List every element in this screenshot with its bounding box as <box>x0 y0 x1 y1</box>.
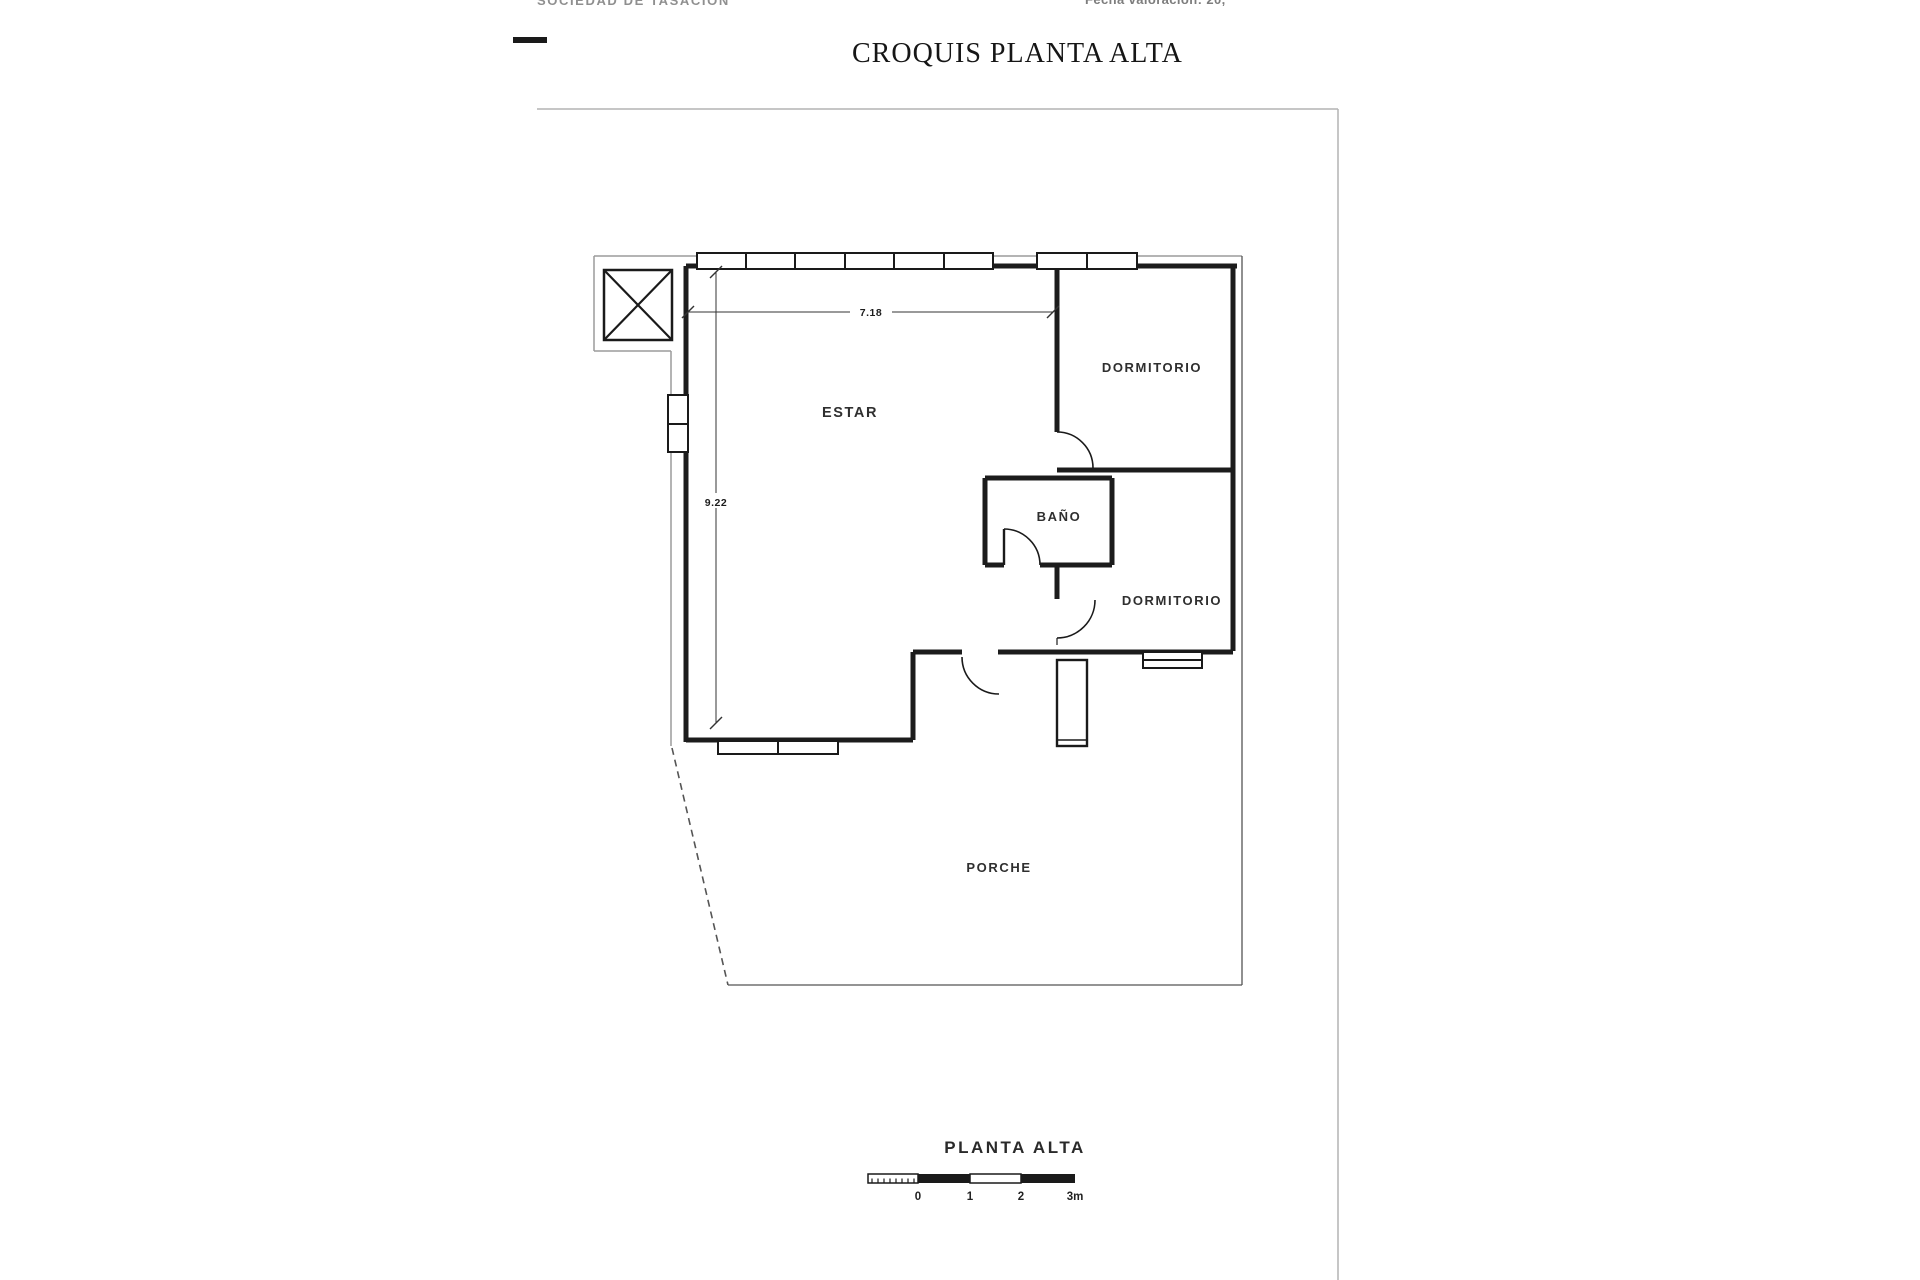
floorplan-drawing: 7.189.22ESTARDORMITORIOBAÑODORMITORIOPOR… <box>0 0 1920 1280</box>
shaft-box <box>604 270 672 340</box>
scale-tick-label: 1 <box>967 1191 974 1203</box>
room-label-porche: PORCHE <box>966 860 1031 875</box>
windows <box>668 253 1202 754</box>
scale-bar-segment <box>918 1174 970 1183</box>
walls <box>686 266 1237 742</box>
scale-tick-label: 2 <box>1018 1191 1024 1203</box>
room-label-dormitorio: DORMITORIO <box>1102 360 1202 375</box>
door-swing-arc <box>962 657 999 694</box>
door-swing-arc <box>1057 600 1095 638</box>
door-swing-arc <box>1004 529 1040 565</box>
logo <box>513 37 547 43</box>
logo-dash <box>513 37 547 43</box>
scale-bar-segment <box>1021 1174 1075 1183</box>
stair-opening <box>1057 660 1087 746</box>
scale-bar: 0123m <box>868 1174 1083 1203</box>
room-label-estar: ESTAR <box>822 405 878 421</box>
door-swing-arc <box>1057 432 1093 468</box>
scale-bar-lead <box>868 1174 918 1183</box>
plan-caption: PLANTA ALTA <box>944 1138 1085 1157</box>
scale-bar-segment <box>970 1174 1021 1183</box>
scale-tick-label: 3m <box>1067 1191 1084 1203</box>
footer-caption: PLANTA ALTA <box>944 1138 1085 1157</box>
scale-tick-label: 0 <box>915 1191 921 1203</box>
dimension-lines: 7.189.22 <box>682 266 1059 729</box>
room-label-bao: BAÑO <box>1037 509 1082 524</box>
room-label-dormitorio: DORMITORIO <box>1122 593 1222 608</box>
scanned-floorplan-page: SOCIEDAD DE TASACIÓN Fecha valoración: 2… <box>0 0 1920 1280</box>
room-labels: ESTARDORMITORIOBAÑODORMITORIOPORCHE <box>822 360 1222 875</box>
dimension-label: 7.18 <box>860 307 882 319</box>
dimension-label: 9.22 <box>705 497 727 509</box>
stair-rect <box>1057 660 1087 746</box>
